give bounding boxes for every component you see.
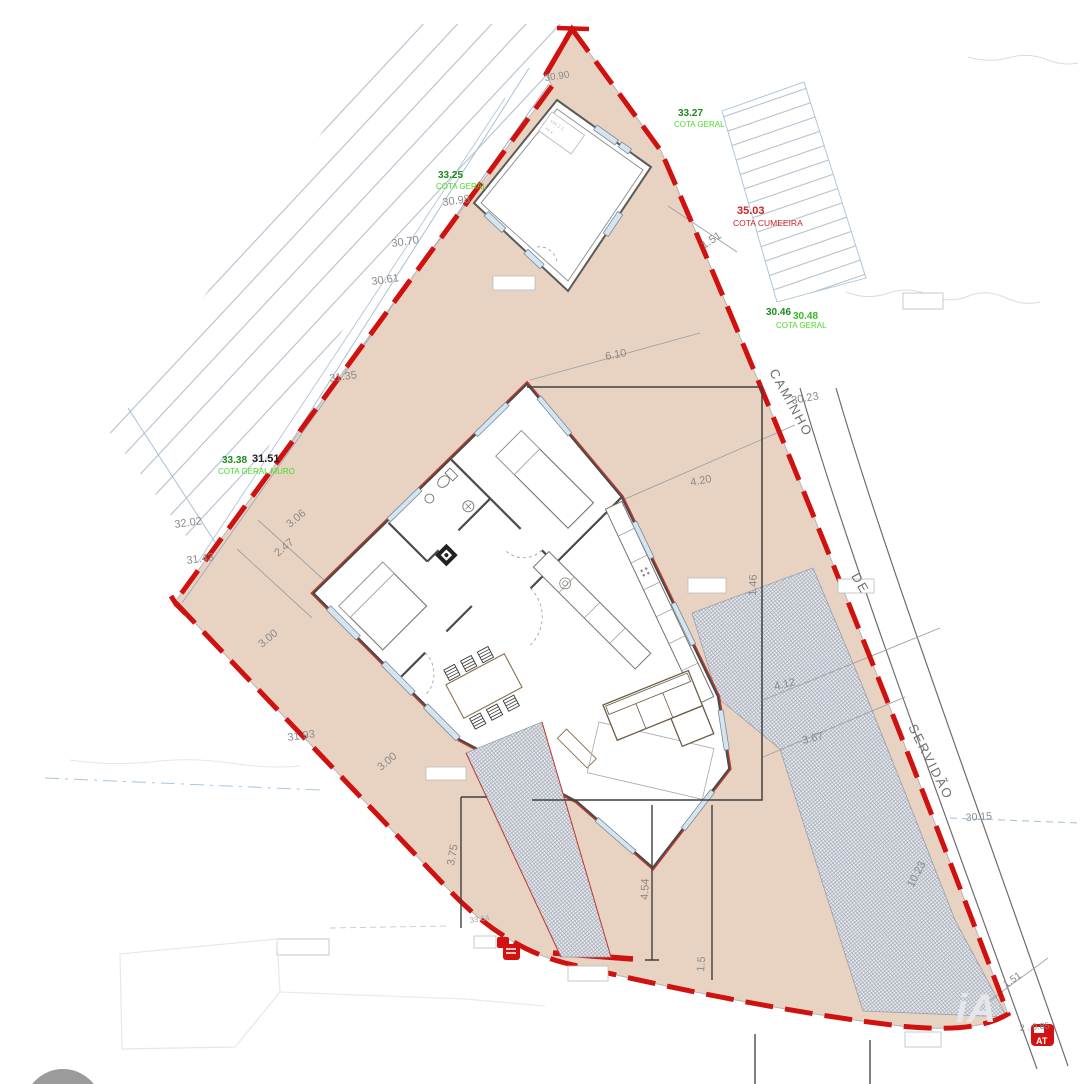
svg-text:COTA GERAL MURO: COTA GERAL MURO <box>218 467 295 476</box>
svg-text:COTA CUMEEIRA: COTA CUMEEIRA <box>733 218 803 228</box>
svg-text:COTA GERAL: COTA GERAL <box>436 182 487 191</box>
svg-text:COTA GERAL: COTA GERAL <box>776 321 827 330</box>
svg-text:1.46: 1.46 <box>747 574 760 596</box>
svg-text:30.15: 30.15 <box>965 810 992 824</box>
svg-text:33.38: 33.38 <box>222 455 247 466</box>
svg-text:4.54: 4.54 <box>639 878 652 900</box>
svg-text:35.03: 35.03 <box>737 205 765 217</box>
svg-text:AT: AT <box>1036 1036 1048 1046</box>
svg-text:1.5: 1.5 <box>695 956 708 972</box>
svg-text:33.25: 33.25 <box>438 170 463 181</box>
svg-text:iA: iA <box>956 987 996 1031</box>
svg-text:COTA GERAL: COTA GERAL <box>674 120 725 129</box>
svg-text:33.27: 33.27 <box>678 108 703 119</box>
svg-text:30.46: 30.46 <box>766 307 791 318</box>
svg-text:31.51: 31.51 <box>252 453 280 465</box>
